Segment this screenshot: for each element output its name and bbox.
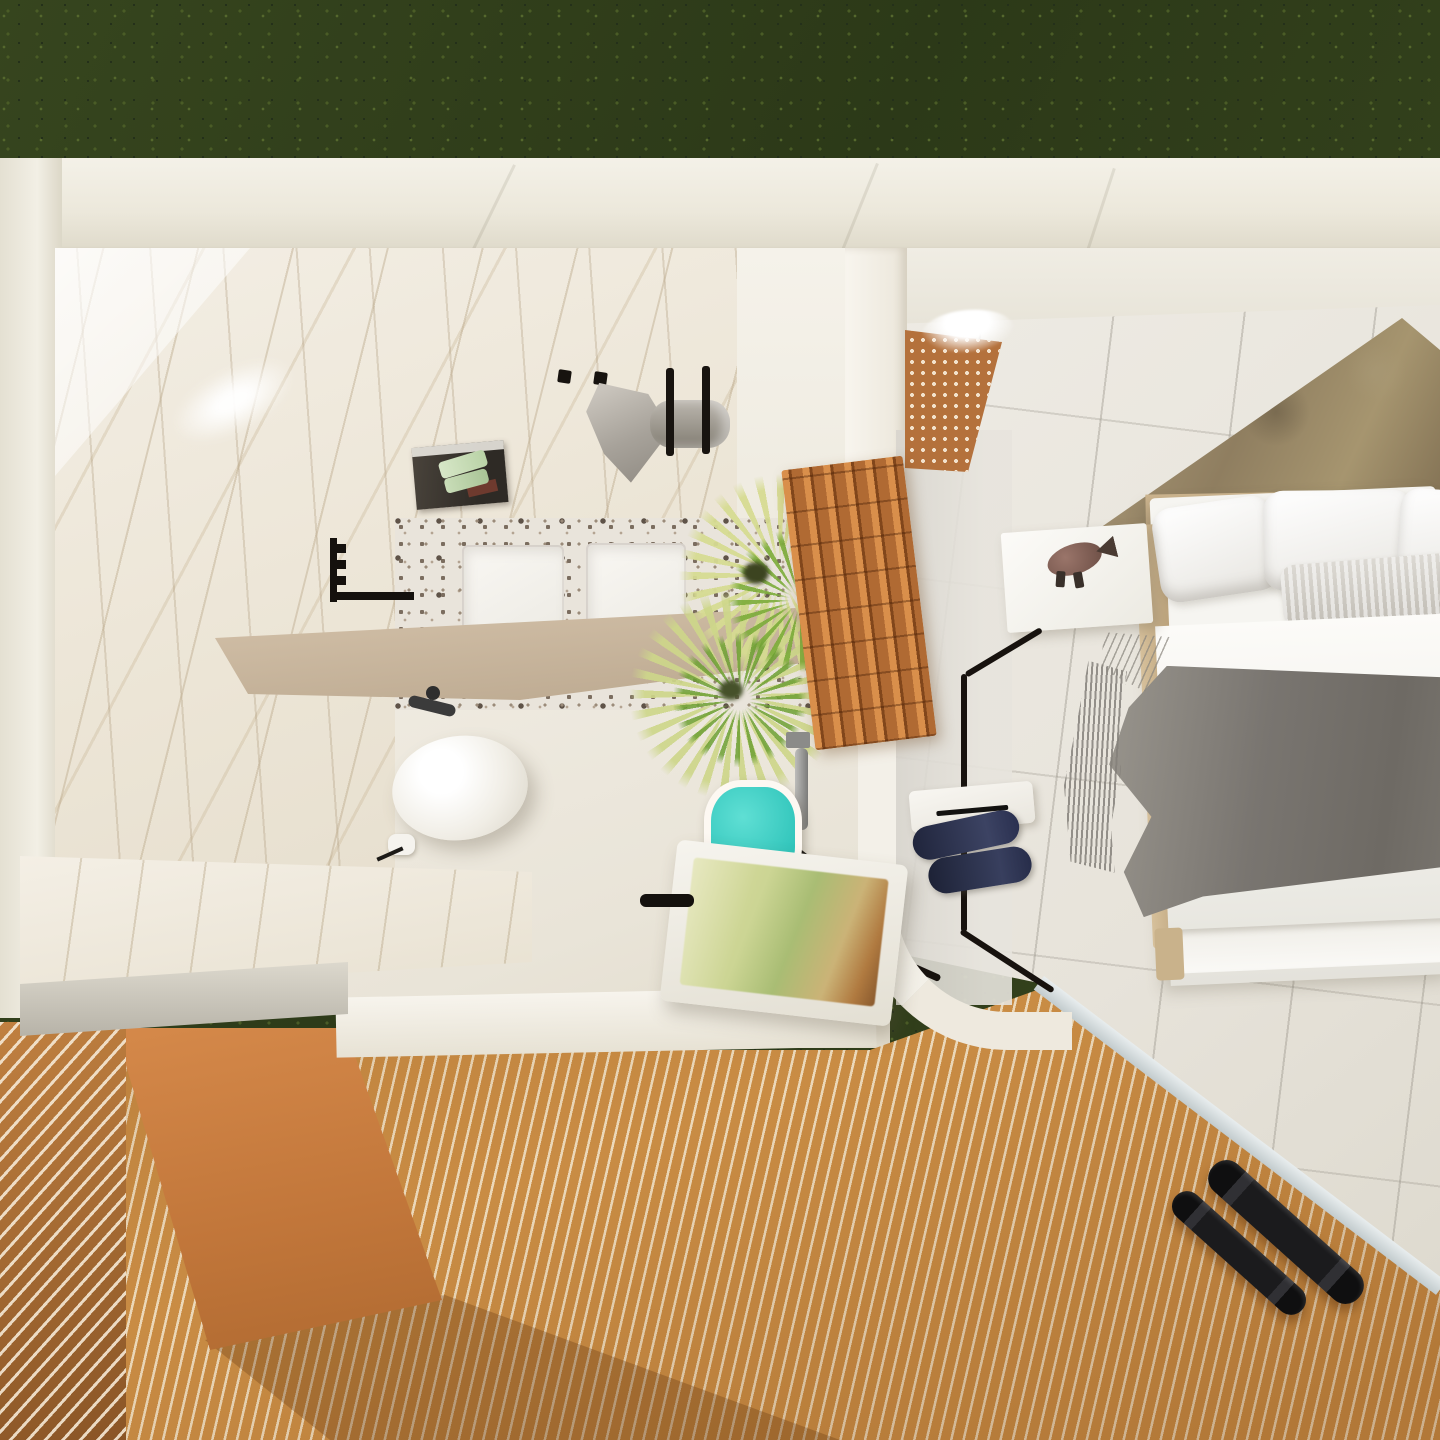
wall-hanger-hook <box>337 576 346 585</box>
towel-rail-bar <box>702 366 710 454</box>
towel-rail-bar <box>666 368 674 456</box>
grab-bar[interactable] <box>640 894 694 907</box>
fish-sculpture-leg <box>1073 571 1085 588</box>
outer-wall-top <box>26 158 1440 256</box>
palm-center <box>743 562 769 584</box>
wall-hanger-hook <box>337 544 346 553</box>
render-canvas <box>0 0 1440 1440</box>
palm-center <box>719 680 743 700</box>
bathtub[interactable] <box>660 839 909 1026</box>
pillow <box>1149 493 1282 605</box>
bed[interactable] <box>1150 486 1440 984</box>
door-hinge <box>786 732 810 748</box>
towel-hook[interactable] <box>557 369 572 384</box>
slatted-screen <box>0 1022 126 1440</box>
wall-hanger-hook <box>337 560 346 569</box>
fish-sculpture-leg <box>1055 571 1065 588</box>
sink-faucet-knob <box>426 686 440 700</box>
palm-fronds <box>670 630 810 770</box>
bathtub-water <box>679 857 888 1006</box>
nightstand[interactable] <box>1001 523 1154 633</box>
bed-leg <box>1154 927 1184 980</box>
rolled-towel[interactable] <box>650 400 730 448</box>
storage-niche[interactable] <box>411 440 508 510</box>
wall-hanger-rail <box>336 592 414 600</box>
